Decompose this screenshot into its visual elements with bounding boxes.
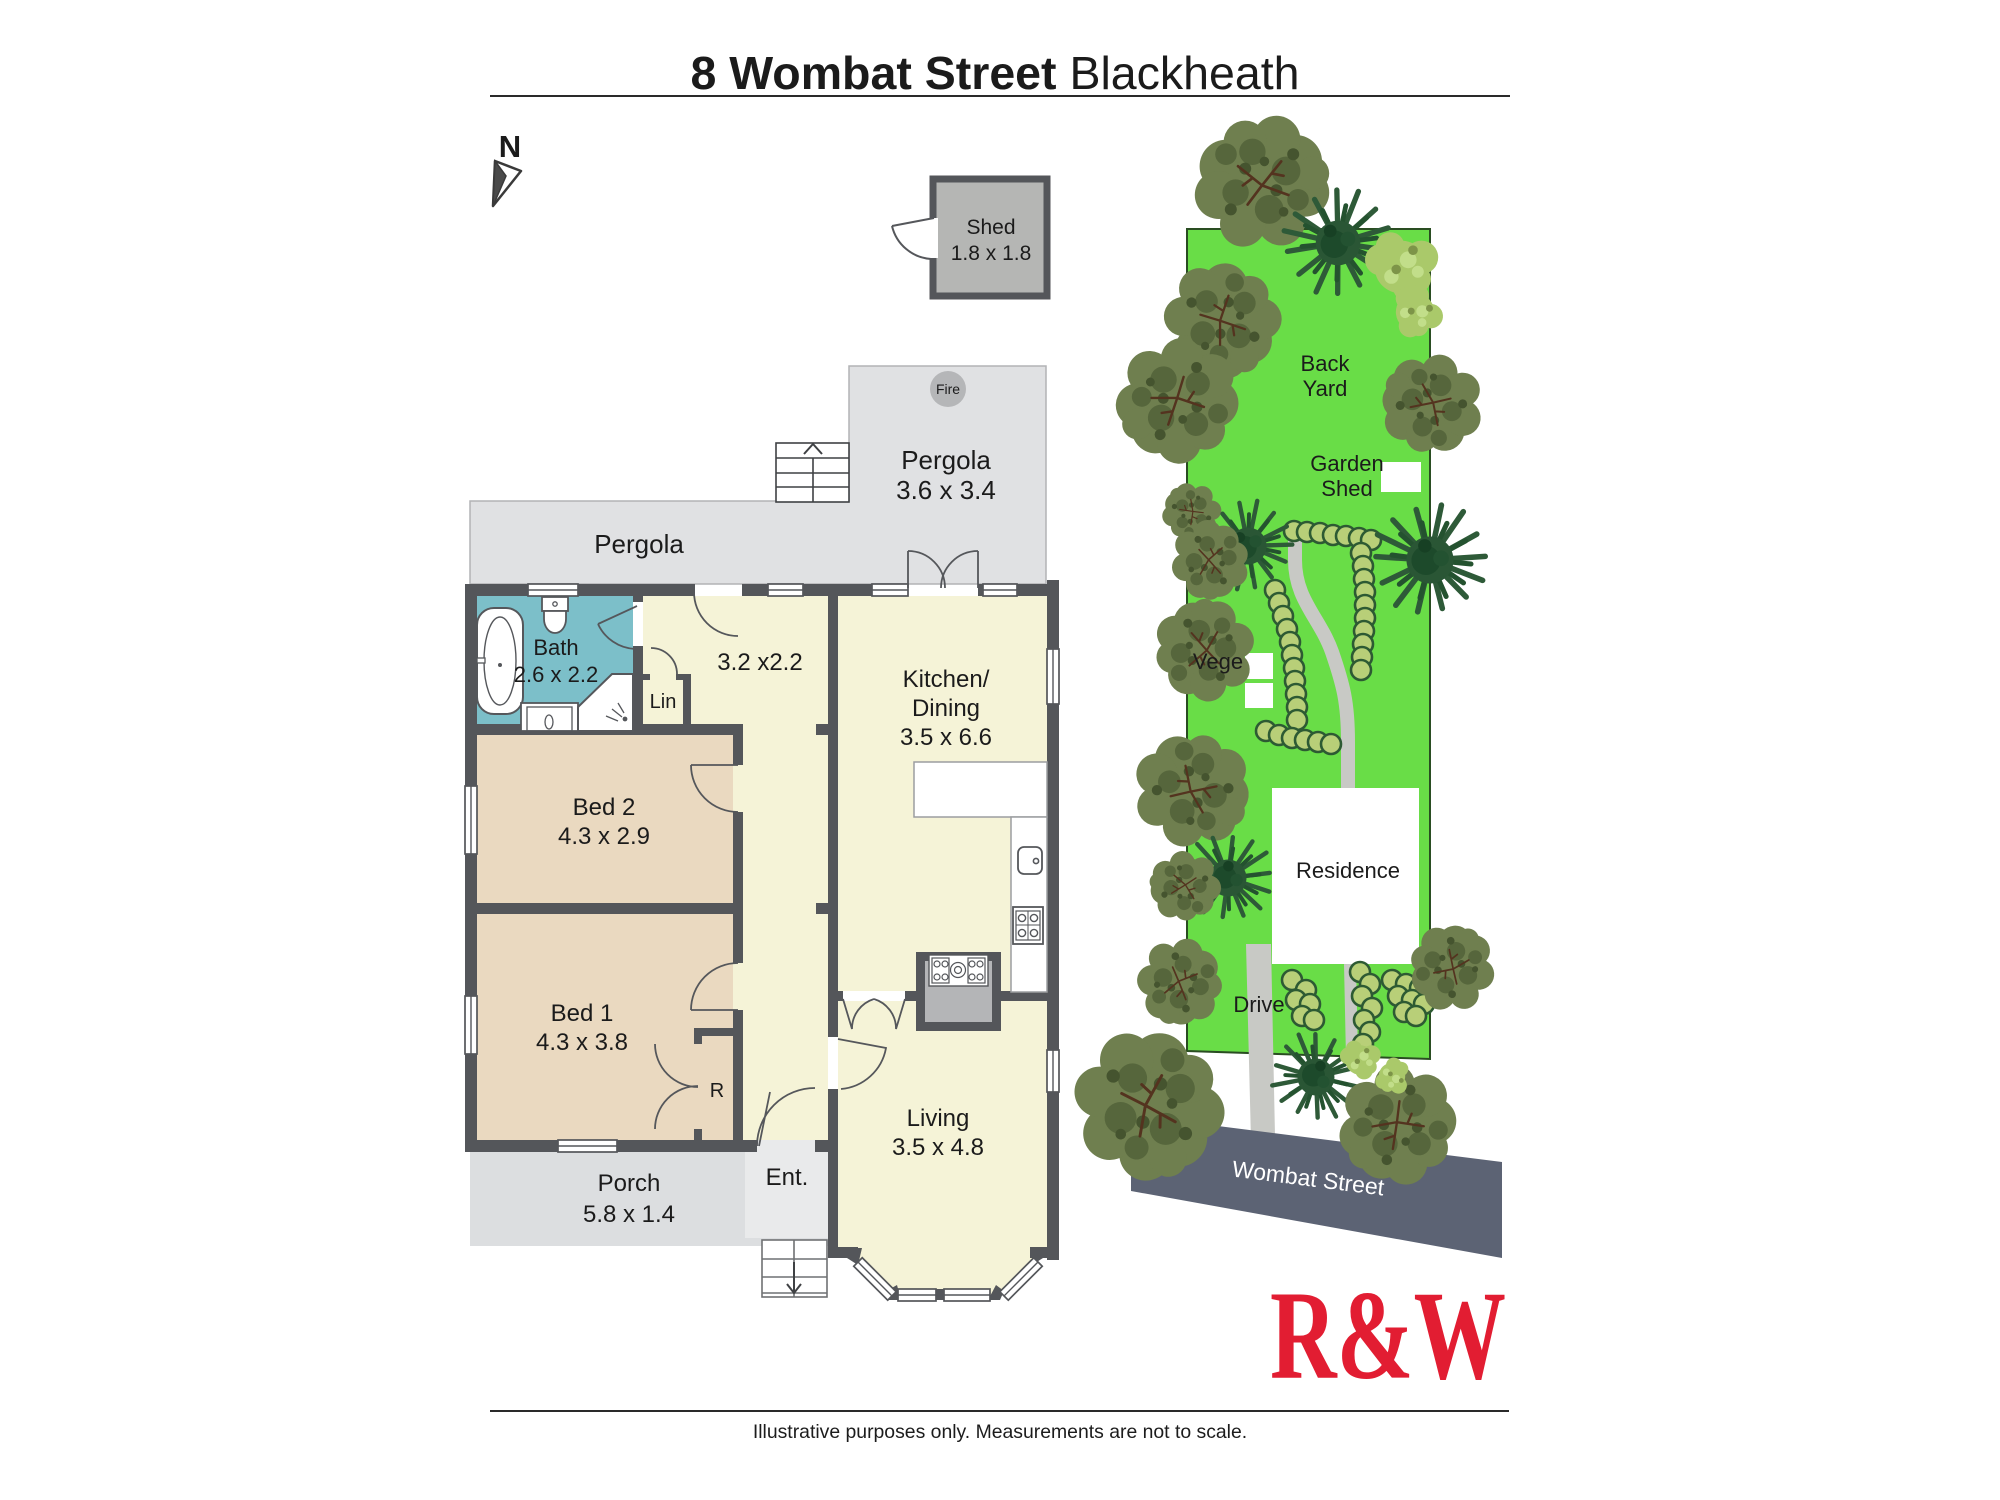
- svg-text:2.6 x 2.2: 2.6 x 2.2: [514, 662, 598, 687]
- svg-text:Ent.: Ent.: [766, 1164, 809, 1191]
- svg-text:Vege: Vege: [1193, 649, 1243, 674]
- svg-text:Pergola: Pergola: [901, 445, 991, 475]
- svg-text:Bath: Bath: [533, 635, 578, 660]
- svg-text:3.6 x 3.4: 3.6 x 3.4: [896, 475, 996, 505]
- svg-text:Bed 1: Bed 1: [551, 1000, 614, 1027]
- svg-text:Shed: Shed: [966, 216, 1015, 239]
- svg-text:Porch: Porch: [598, 1170, 661, 1197]
- svg-text:Illustrative purposes only. Me: Illustrative purposes only. Measurements…: [753, 1421, 1247, 1443]
- svg-text:1.8 x 1.8: 1.8 x 1.8: [951, 242, 1032, 265]
- svg-text:N: N: [499, 129, 521, 164]
- svg-text:Shed: Shed: [1321, 476, 1372, 501]
- svg-text:4.3 x 2.9: 4.3 x 2.9: [558, 823, 650, 850]
- svg-text:3.2 x2.2: 3.2 x2.2: [717, 649, 802, 676]
- svg-text:R: R: [710, 1080, 724, 1102]
- svg-text:Living: Living: [907, 1105, 970, 1132]
- svg-text:Bed 2: Bed 2: [573, 794, 636, 821]
- svg-text:Dining: Dining: [912, 695, 980, 722]
- svg-text:Yard: Yard: [1303, 376, 1348, 401]
- svg-text:3.5 x 4.8: 3.5 x 4.8: [892, 1134, 984, 1161]
- svg-text:R&W: R&W: [1270, 1266, 1506, 1406]
- svg-text:Pergola: Pergola: [594, 529, 684, 559]
- svg-text:Back: Back: [1301, 351, 1351, 376]
- svg-text:4.3 x 3.8: 4.3 x 3.8: [536, 1029, 628, 1056]
- svg-text:Garden: Garden: [1310, 451, 1383, 476]
- svg-text:5.8 x 1.4: 5.8 x 1.4: [583, 1201, 675, 1228]
- svg-text:3.5 x 6.6: 3.5 x 6.6: [900, 724, 992, 751]
- svg-text:Lin: Lin: [650, 691, 677, 713]
- svg-text:8 Wombat Street Blackheath: 8 Wombat Street Blackheath: [690, 47, 1299, 99]
- svg-text:Fire: Fire: [936, 381, 960, 397]
- svg-text:Drive: Drive: [1233, 992, 1284, 1017]
- svg-text:Residence: Residence: [1296, 858, 1400, 883]
- svg-text:Kitchen/: Kitchen/: [903, 666, 990, 693]
